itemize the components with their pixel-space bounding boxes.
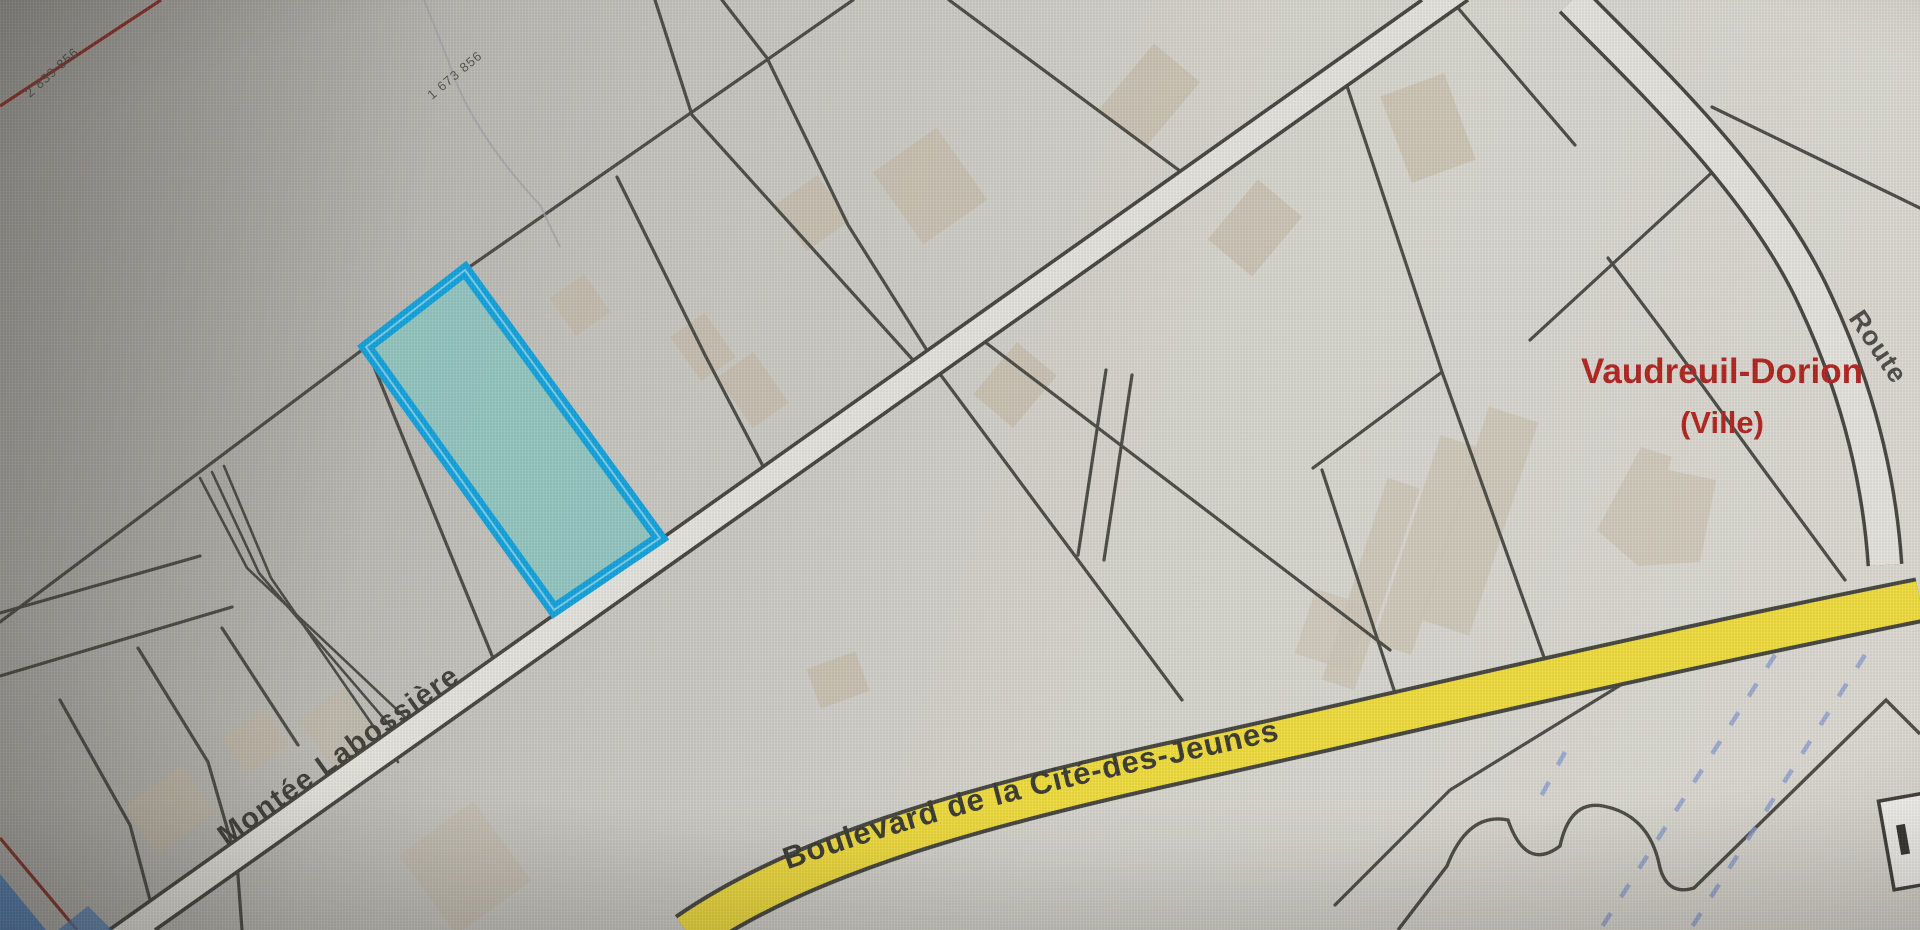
municipality-type: (Ville) [1680, 405, 1764, 440]
map-viewport[interactable]: 2 839 856 1 673 856 Montée Labossière Bo… [0, 0, 1920, 930]
map-canvas[interactable]: 2 839 856 1 673 856 Montée Labossière Bo… [0, 0, 1920, 930]
municipality-name: Vaudreuil-Dorion [1581, 352, 1863, 391]
